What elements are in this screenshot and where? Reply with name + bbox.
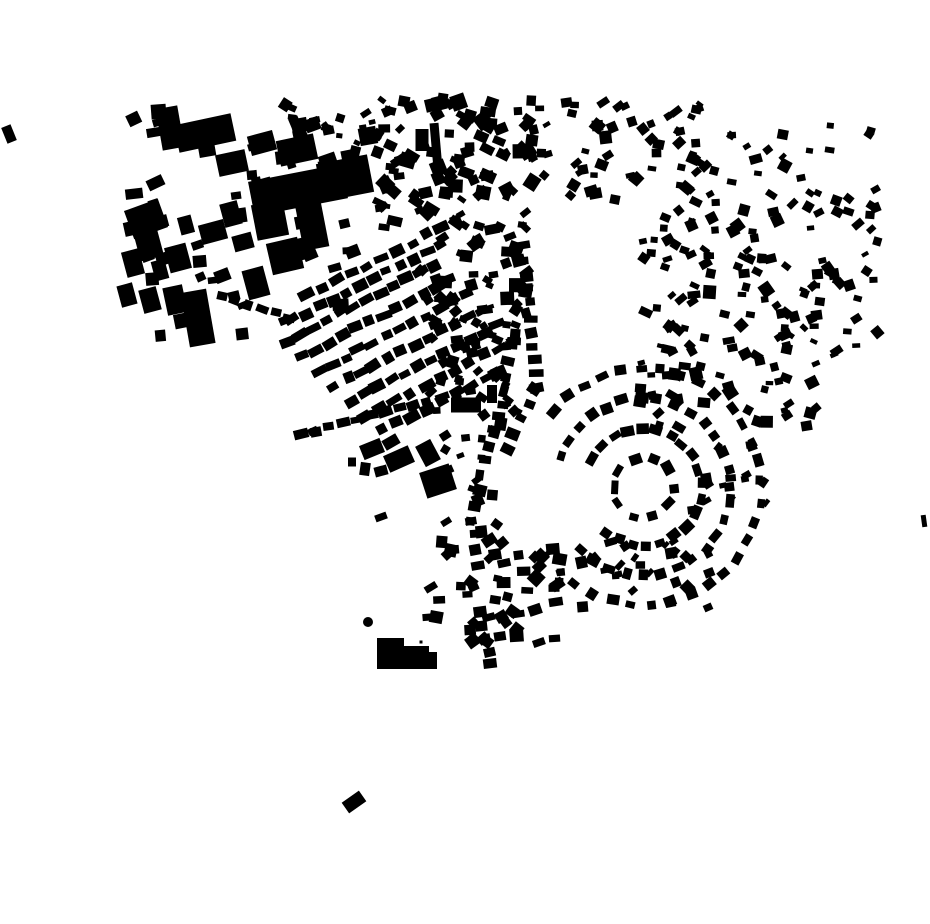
building xyxy=(749,153,763,165)
building-landmark xyxy=(348,458,356,467)
building xyxy=(418,186,433,199)
building xyxy=(433,407,441,414)
building xyxy=(738,347,753,362)
building xyxy=(500,442,516,457)
building xyxy=(173,312,190,329)
building xyxy=(869,277,877,283)
building xyxy=(527,603,543,617)
building xyxy=(641,541,651,551)
building xyxy=(313,298,329,312)
building xyxy=(843,193,855,205)
building xyxy=(843,328,852,334)
building-round xyxy=(363,617,373,627)
building xyxy=(502,321,511,329)
building xyxy=(394,259,407,272)
building xyxy=(532,637,546,648)
building xyxy=(455,377,464,385)
building xyxy=(754,170,762,176)
building xyxy=(684,407,698,420)
building xyxy=(625,600,636,609)
building xyxy=(469,271,479,278)
building xyxy=(348,342,366,356)
building xyxy=(708,528,723,543)
building xyxy=(484,223,500,235)
building xyxy=(525,134,538,147)
building xyxy=(362,314,375,327)
building xyxy=(842,278,856,292)
building xyxy=(725,474,736,482)
building xyxy=(501,343,512,351)
building xyxy=(685,447,699,462)
building xyxy=(548,585,559,592)
building xyxy=(495,536,510,551)
building xyxy=(673,204,685,216)
building xyxy=(850,313,863,325)
building xyxy=(711,199,720,206)
building xyxy=(719,514,729,525)
building xyxy=(646,510,658,521)
building-landmark xyxy=(138,286,162,314)
building xyxy=(594,439,608,453)
building xyxy=(307,343,325,358)
building xyxy=(294,349,309,361)
building xyxy=(742,142,751,150)
building xyxy=(810,323,819,329)
building xyxy=(811,360,820,368)
building xyxy=(585,587,599,601)
building-landmark xyxy=(215,149,249,177)
building xyxy=(522,172,541,192)
building xyxy=(524,327,538,340)
building xyxy=(609,430,622,442)
building xyxy=(585,451,599,467)
building xyxy=(661,344,675,355)
building xyxy=(719,309,730,318)
building xyxy=(145,272,159,286)
building-landmark xyxy=(451,398,481,413)
building xyxy=(687,290,701,299)
building xyxy=(647,372,655,378)
building xyxy=(611,497,622,509)
building xyxy=(393,172,404,180)
building xyxy=(235,327,249,340)
building xyxy=(381,351,395,366)
building xyxy=(523,399,536,410)
building-complex xyxy=(377,638,437,669)
building xyxy=(385,163,395,171)
building xyxy=(727,178,737,186)
building xyxy=(195,271,207,282)
building xyxy=(321,336,337,351)
building-landmark xyxy=(420,641,423,644)
building xyxy=(510,320,521,329)
building xyxy=(424,355,438,367)
building xyxy=(562,435,575,449)
building xyxy=(424,581,439,594)
building xyxy=(395,124,405,134)
building xyxy=(419,245,436,257)
building xyxy=(478,435,486,443)
building xyxy=(488,271,498,279)
building xyxy=(660,459,676,476)
building xyxy=(325,358,342,371)
building xyxy=(842,206,854,216)
building xyxy=(620,425,635,438)
building xyxy=(807,280,820,292)
building xyxy=(622,567,633,580)
building xyxy=(457,195,467,204)
building xyxy=(363,338,379,351)
building xyxy=(777,129,789,140)
building xyxy=(872,236,882,246)
building xyxy=(373,252,389,264)
building xyxy=(216,291,228,301)
building xyxy=(745,311,755,318)
building xyxy=(628,585,639,595)
building xyxy=(630,553,639,563)
building xyxy=(526,343,537,351)
building xyxy=(490,518,503,531)
building xyxy=(777,158,793,174)
building xyxy=(705,268,716,279)
building xyxy=(548,597,563,607)
building xyxy=(697,397,710,408)
building xyxy=(477,454,485,460)
building xyxy=(825,146,835,153)
building xyxy=(526,95,536,106)
building xyxy=(578,381,591,392)
building xyxy=(559,388,575,403)
building xyxy=(567,109,577,118)
building xyxy=(774,377,783,385)
building xyxy=(486,331,497,339)
building xyxy=(377,96,386,105)
building xyxy=(398,369,411,380)
building xyxy=(659,212,671,223)
building xyxy=(639,238,648,245)
building-landmark xyxy=(231,232,254,253)
building xyxy=(810,338,818,345)
building xyxy=(471,560,486,571)
building xyxy=(626,116,638,128)
building xyxy=(799,323,808,332)
building xyxy=(669,484,679,494)
building xyxy=(647,453,660,466)
building xyxy=(546,403,562,420)
building xyxy=(453,154,465,164)
building xyxy=(493,574,503,582)
building xyxy=(766,381,774,385)
building xyxy=(469,543,482,556)
building xyxy=(327,262,341,273)
building xyxy=(762,144,773,155)
building xyxy=(151,104,167,120)
building xyxy=(448,215,466,231)
building xyxy=(751,266,763,277)
building xyxy=(700,333,710,342)
building xyxy=(830,194,843,207)
building xyxy=(326,381,339,393)
building xyxy=(432,220,451,236)
building xyxy=(483,647,496,658)
building xyxy=(703,603,714,613)
building xyxy=(741,533,753,546)
building xyxy=(741,282,750,292)
building xyxy=(667,291,676,300)
building xyxy=(358,292,375,306)
building xyxy=(366,271,383,286)
building xyxy=(494,417,508,431)
building xyxy=(311,364,329,378)
building xyxy=(381,329,394,341)
building xyxy=(396,270,414,286)
building-landmark xyxy=(921,515,928,528)
building xyxy=(519,207,531,218)
building xyxy=(388,415,403,429)
building xyxy=(637,360,645,367)
building xyxy=(660,262,670,271)
building xyxy=(599,402,614,416)
building xyxy=(335,113,346,123)
building xyxy=(599,526,613,539)
building xyxy=(566,178,581,193)
building xyxy=(422,613,432,621)
building xyxy=(716,567,730,581)
building xyxy=(705,211,719,225)
building xyxy=(373,286,390,300)
building xyxy=(270,307,282,317)
building xyxy=(662,255,672,263)
building xyxy=(489,595,501,605)
building xyxy=(591,120,603,131)
building xyxy=(487,118,497,127)
building xyxy=(207,276,219,284)
building xyxy=(715,372,725,380)
building xyxy=(614,364,627,375)
building xyxy=(757,280,775,298)
building xyxy=(528,355,542,365)
building xyxy=(570,102,579,109)
building xyxy=(647,600,657,610)
building xyxy=(275,150,289,165)
building xyxy=(448,179,463,193)
building xyxy=(483,658,497,669)
building xyxy=(529,369,544,377)
building xyxy=(426,259,442,274)
building xyxy=(567,577,580,590)
building xyxy=(852,343,860,348)
building-landmark xyxy=(487,385,497,403)
building xyxy=(449,305,462,318)
building xyxy=(614,559,625,571)
building xyxy=(726,401,740,415)
building xyxy=(595,370,609,382)
building xyxy=(731,551,744,566)
building xyxy=(310,426,323,437)
building xyxy=(662,371,674,380)
map-canvas xyxy=(0,0,930,924)
building xyxy=(549,635,561,643)
building xyxy=(155,330,166,342)
building xyxy=(360,108,372,119)
building xyxy=(556,450,566,461)
building xyxy=(861,265,873,277)
building xyxy=(738,292,747,297)
building-landmark xyxy=(359,438,385,460)
building xyxy=(521,587,533,594)
building xyxy=(827,122,835,128)
building xyxy=(353,139,361,146)
building xyxy=(727,343,738,352)
building xyxy=(358,126,379,146)
building xyxy=(409,358,426,374)
building xyxy=(648,390,657,400)
building xyxy=(742,245,752,255)
building xyxy=(517,566,531,576)
building xyxy=(388,243,406,259)
building-landmark xyxy=(342,791,367,814)
building xyxy=(298,307,314,322)
building-landmark xyxy=(381,433,400,451)
building xyxy=(870,325,884,340)
building xyxy=(473,221,485,231)
building xyxy=(405,399,420,412)
building xyxy=(328,272,345,287)
building xyxy=(708,430,720,442)
building xyxy=(303,220,321,235)
building xyxy=(407,338,425,354)
building xyxy=(614,570,623,578)
building xyxy=(638,306,653,319)
building xyxy=(689,281,700,290)
building xyxy=(145,174,165,191)
building xyxy=(674,438,688,451)
building xyxy=(672,136,686,150)
building xyxy=(674,293,688,306)
building xyxy=(709,166,720,176)
building xyxy=(661,496,676,511)
building xyxy=(513,550,524,560)
building xyxy=(602,150,615,162)
building xyxy=(518,282,533,298)
building xyxy=(612,464,624,478)
building xyxy=(438,276,452,289)
building xyxy=(650,236,658,243)
building xyxy=(796,174,806,182)
building xyxy=(380,266,392,276)
building xyxy=(737,203,750,217)
building xyxy=(407,238,419,249)
building xyxy=(503,231,516,242)
building xyxy=(647,166,656,172)
building xyxy=(805,188,815,197)
building xyxy=(192,255,206,268)
building xyxy=(336,133,343,139)
building xyxy=(332,298,349,311)
building xyxy=(255,303,269,315)
building xyxy=(703,285,717,299)
building xyxy=(699,416,713,430)
building xyxy=(748,228,757,235)
building xyxy=(581,148,590,155)
building xyxy=(375,422,388,435)
building xyxy=(677,163,686,171)
building xyxy=(371,145,385,159)
building xyxy=(440,444,451,455)
building xyxy=(315,282,329,295)
building-landmark xyxy=(251,199,289,240)
building xyxy=(392,343,407,357)
building xyxy=(752,453,765,468)
building xyxy=(653,567,667,580)
building-landmark xyxy=(373,464,388,477)
building-landmark xyxy=(116,282,137,307)
building xyxy=(765,189,778,201)
building xyxy=(866,224,877,234)
building xyxy=(344,266,359,278)
building xyxy=(814,297,825,306)
building xyxy=(439,429,452,441)
building xyxy=(606,594,620,606)
building xyxy=(456,452,465,459)
building xyxy=(802,200,815,213)
building xyxy=(341,353,353,364)
building xyxy=(338,218,350,229)
building xyxy=(705,190,714,199)
building-landmark xyxy=(198,219,228,245)
building xyxy=(500,291,514,305)
building xyxy=(736,417,748,431)
building xyxy=(653,304,662,312)
building xyxy=(465,385,476,396)
building-landmark xyxy=(241,266,270,301)
building xyxy=(590,172,598,178)
building xyxy=(392,322,407,334)
building xyxy=(293,428,309,441)
building xyxy=(336,417,351,429)
building xyxy=(403,387,417,401)
building xyxy=(574,543,588,556)
building xyxy=(722,336,735,345)
building xyxy=(493,631,506,642)
building xyxy=(760,385,769,394)
building xyxy=(652,407,665,419)
building xyxy=(297,286,316,302)
building-landmark xyxy=(247,130,277,156)
building xyxy=(386,279,400,292)
building xyxy=(742,404,754,416)
building xyxy=(727,132,736,139)
building xyxy=(360,261,373,273)
building xyxy=(853,295,862,303)
building xyxy=(806,148,814,154)
building xyxy=(613,393,629,406)
building xyxy=(486,304,494,310)
building xyxy=(497,558,511,569)
building xyxy=(660,224,668,232)
building xyxy=(433,596,445,604)
building xyxy=(804,375,820,390)
building-landmark xyxy=(415,439,441,467)
building xyxy=(813,207,825,217)
building xyxy=(492,135,506,147)
building xyxy=(652,149,662,158)
building xyxy=(596,96,610,108)
building xyxy=(385,372,400,385)
building xyxy=(474,185,491,201)
building xyxy=(126,253,141,268)
building xyxy=(535,106,544,112)
